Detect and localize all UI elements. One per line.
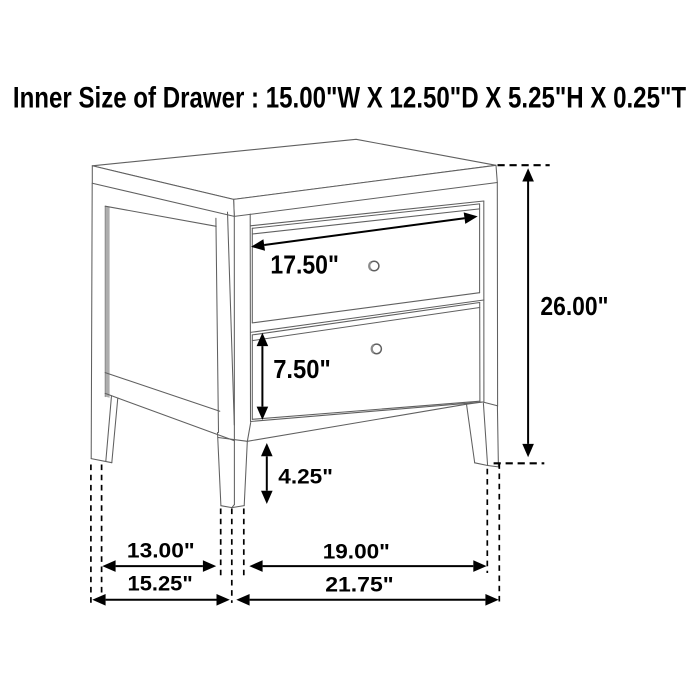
- svg-text:Inner Size of Drawer : 15.00"W: Inner Size of Drawer : 15.00"W X 12.50"D…: [13, 80, 687, 114]
- svg-text:26.00": 26.00": [540, 293, 608, 322]
- svg-text:13.00": 13.00": [127, 538, 195, 562]
- svg-text:21.75": 21.75": [325, 572, 393, 596]
- svg-text:7.50": 7.50": [273, 355, 331, 384]
- svg-text:15.25": 15.25": [128, 571, 193, 596]
- svg-text:19.00": 19.00": [323, 539, 390, 563]
- svg-text:4.25": 4.25": [278, 464, 333, 488]
- svg-text:17.50": 17.50": [270, 251, 338, 280]
